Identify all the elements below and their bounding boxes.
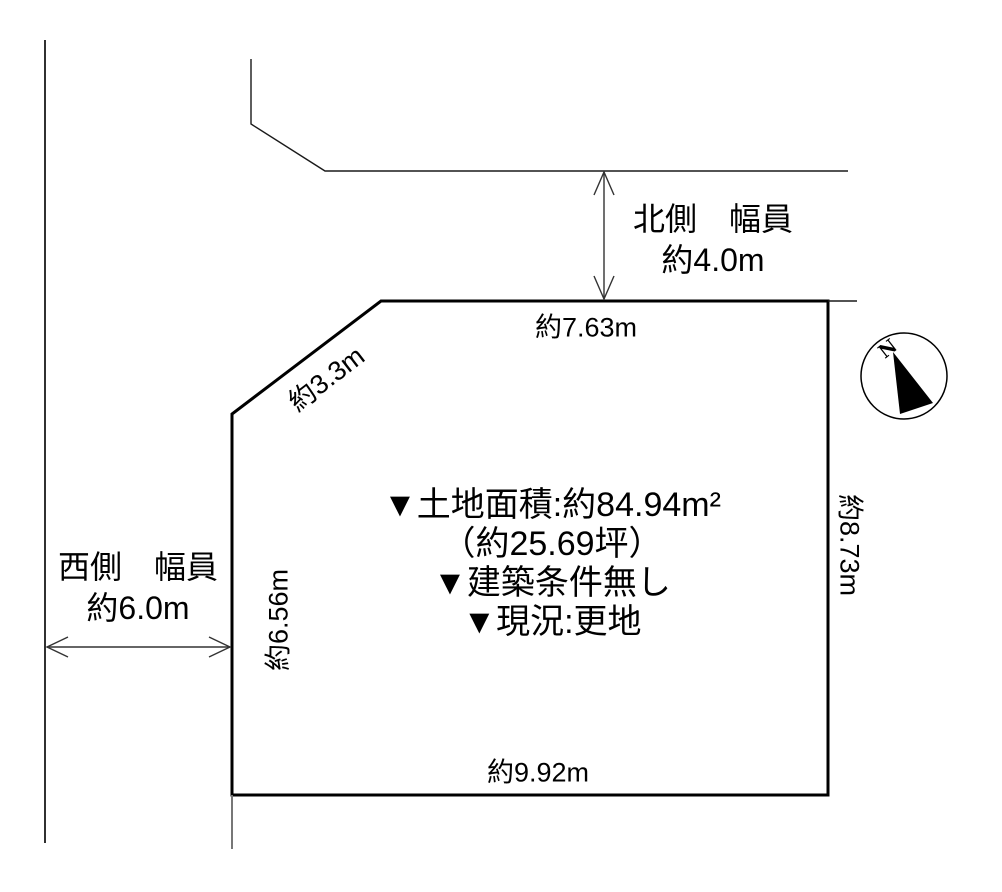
dimension-left: 約6.56m bbox=[257, 569, 296, 671]
north-width-arrow bbox=[594, 172, 614, 299]
dimension-right: 約8.73m bbox=[833, 494, 872, 596]
north-road-label-line2: 約4.0m bbox=[613, 240, 813, 281]
compass-needle-icon bbox=[893, 352, 933, 414]
property-info-area: ▼土地面積:約84.94m² bbox=[383, 486, 721, 525]
dimension-top: 約7.63m bbox=[535, 306, 637, 345]
property-info: ▼土地面積:約84.94m² （約25.69坪） ▼建築条件無し ▼現況:更地 bbox=[383, 486, 721, 642]
west-width-arrow bbox=[47, 637, 230, 657]
property-info-current-state: ▼現況:更地 bbox=[383, 603, 721, 642]
north-road-label-line1: 北側 幅員 bbox=[613, 199, 813, 240]
property-info-area-tsubo: （約25.69坪） bbox=[383, 525, 721, 564]
west-road-label-line1: 西側 幅員 bbox=[38, 547, 238, 588]
north-road-label: 北側 幅員 約4.0m bbox=[613, 199, 813, 281]
dimension-bottom: 約9.92m bbox=[487, 751, 589, 790]
property-info-building-conditions: ▼建築条件無し bbox=[383, 564, 721, 603]
west-road-label: 西側 幅員 約6.0m bbox=[38, 547, 238, 629]
west-road-label-line2: 約6.0m bbox=[38, 588, 238, 629]
land-plot-diagram: N 北側 幅員 約4.0m 西側 幅員 約6.0m 約7.63m 約3.3m 約… bbox=[0, 0, 1002, 892]
compass-icon: N bbox=[861, 333, 947, 419]
north-road-line bbox=[251, 59, 848, 171]
